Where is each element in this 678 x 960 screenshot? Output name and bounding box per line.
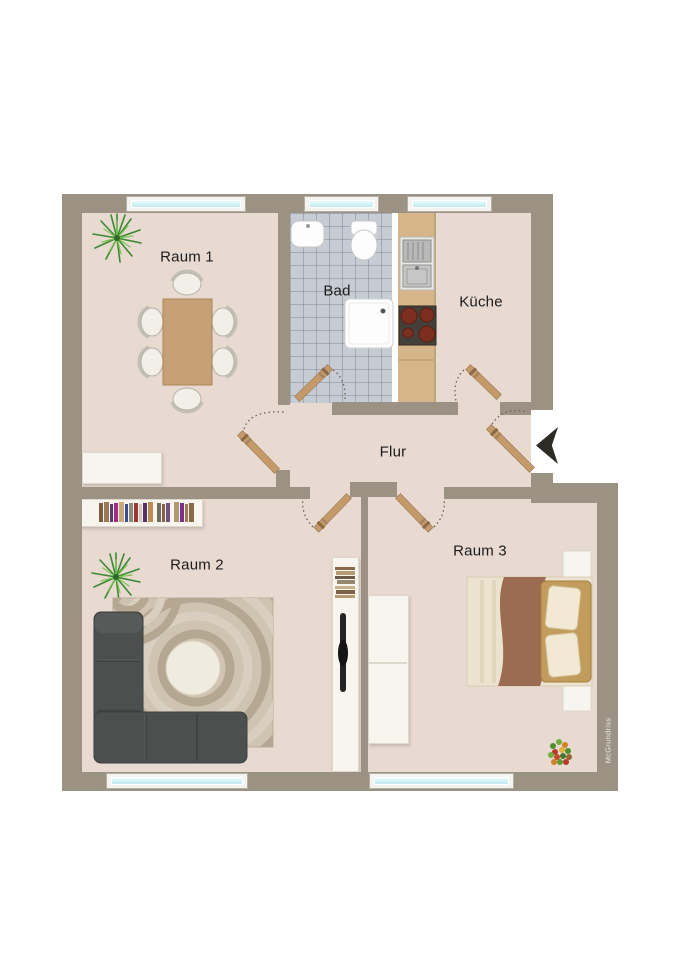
door-raum1	[237, 412, 284, 474]
flower-bouquet-icon	[548, 739, 572, 765]
nightstand	[563, 551, 591, 577]
door-bad	[294, 364, 345, 402]
room-label-raum2: Raum 2	[170, 557, 224, 574]
room-label-kueche: Küche	[459, 294, 503, 311]
stove	[399, 306, 436, 345]
plant-icon	[92, 553, 140, 601]
kitchen-sink	[400, 237, 434, 290]
bookshelf-books	[99, 502, 194, 522]
room-label-raum3: Raum 3	[453, 543, 507, 560]
door-kueche	[455, 364, 502, 401]
door-raum2	[303, 493, 353, 533]
tv	[338, 613, 348, 692]
plant-icon	[93, 214, 141, 262]
toilet	[351, 221, 377, 260]
floor-plan: Raum 1 Bad Küche Flur Raum 2 Raum 3 McGr…	[0, 0, 678, 960]
room-label-raum1: Raum 1	[160, 249, 214, 266]
watermark-text: McGrundriss	[603, 717, 612, 763]
watermark: McGrundriss	[597, 710, 618, 770]
room-label-bad: Bad	[323, 283, 350, 300]
door-entrance	[486, 411, 535, 474]
washbasin	[291, 221, 324, 247]
door-raum3	[395, 493, 445, 533]
double-bed	[467, 551, 592, 711]
shower	[345, 299, 393, 348]
media-shelf-books	[335, 567, 355, 598]
nightstand	[563, 686, 591, 711]
room-label-flur: Flur	[380, 444, 407, 461]
coffee-table	[166, 641, 220, 695]
dining-table	[163, 299, 212, 385]
plan-vector-layer	[0, 0, 678, 960]
